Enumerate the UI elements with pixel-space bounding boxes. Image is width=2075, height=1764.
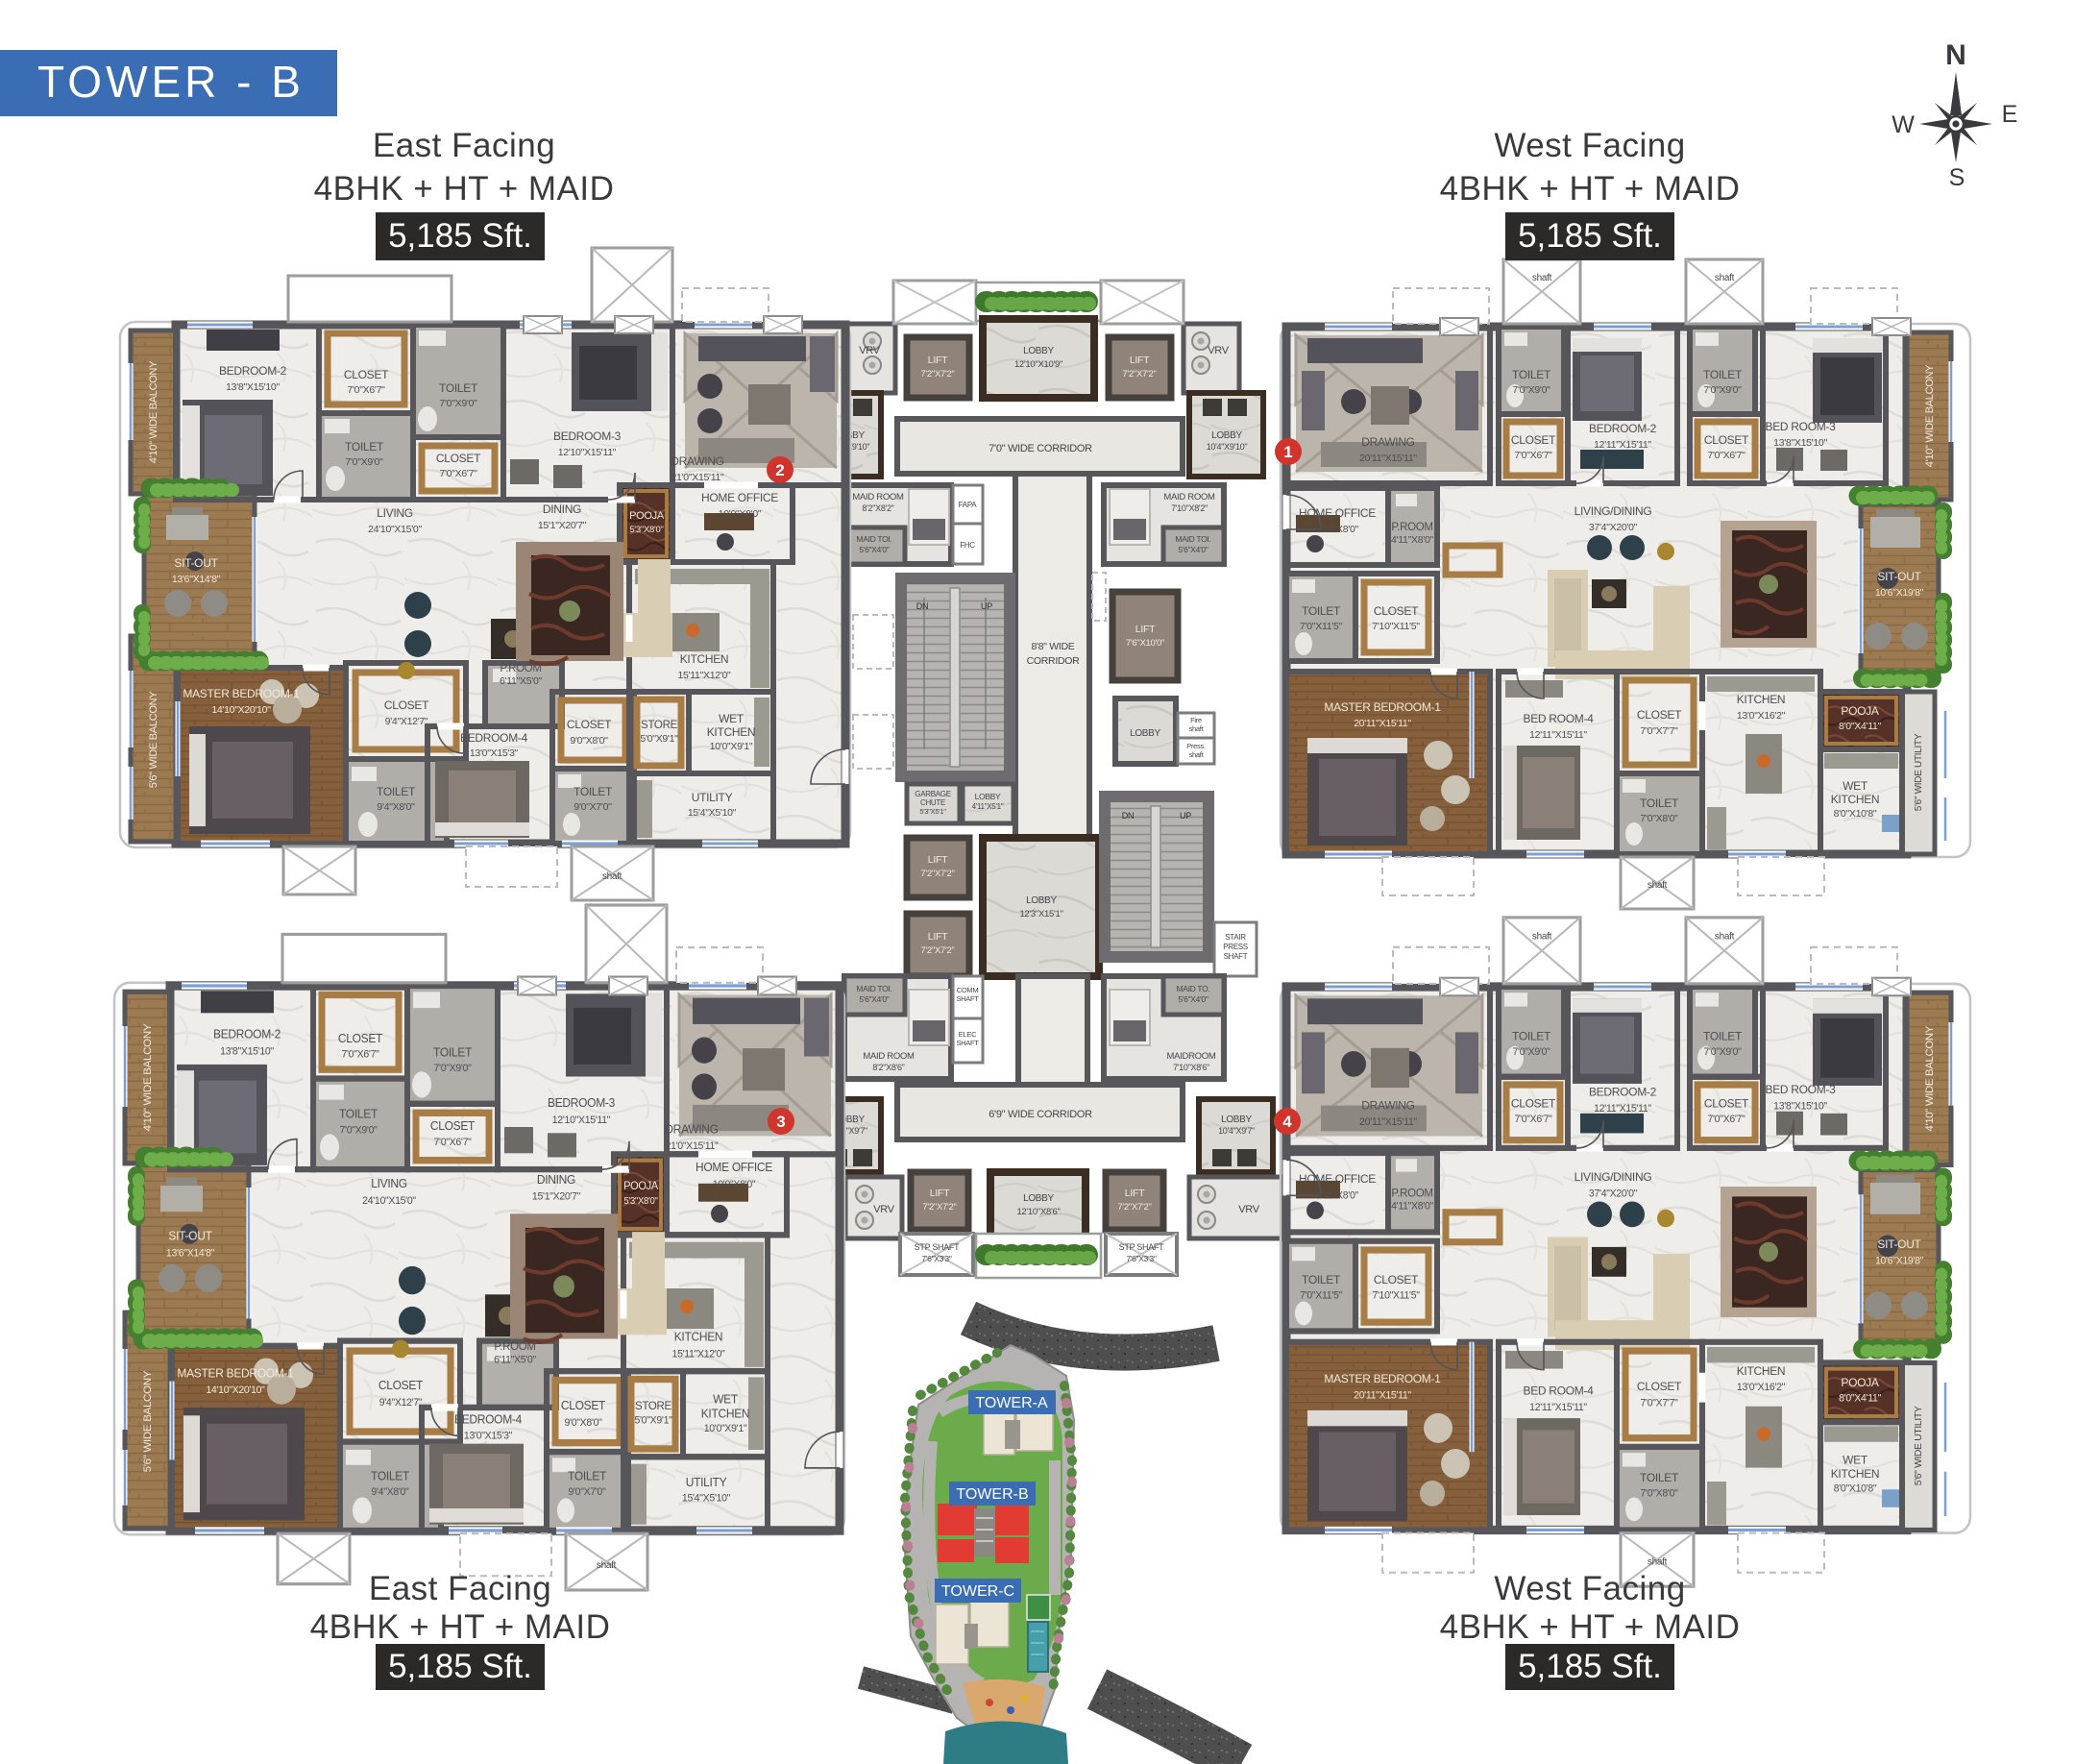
- svg-text:4BHK + HT + MAID: 4BHK + HT + MAID: [310, 1608, 611, 1646]
- svg-text:SHAFT: SHAFT: [956, 1039, 979, 1047]
- svg-text:5'6"X4'0": 5'6"X4'0": [859, 545, 889, 554]
- svg-text:MAID TOI.: MAID TOI.: [856, 534, 891, 544]
- svg-text:MAID TOI.: MAID TOI.: [1175, 534, 1210, 544]
- svg-text:West Facing: West Facing: [1494, 1570, 1685, 1607]
- svg-text:DN: DN: [916, 601, 928, 611]
- svg-text:7'0" WIDE CORRIDOR: 7'0" WIDE CORRIDOR: [989, 443, 1092, 454]
- svg-text:SHAFT: SHAFT: [956, 994, 979, 1003]
- svg-text:MAID ROOM: MAID ROOM: [863, 1051, 915, 1062]
- svg-text:4: 4: [1282, 1113, 1292, 1131]
- svg-text:8'8" WIDE: 8'8" WIDE: [1031, 641, 1074, 652]
- svg-text:12'10"X10'9": 12'10"X10'9": [1014, 359, 1062, 370]
- svg-text:7'2"X7'2": 7'2"X7'2": [1117, 1202, 1151, 1213]
- svg-text:MAID ROOM: MAID ROOM: [852, 492, 904, 502]
- svg-text:GARBAGE: GARBAGE: [915, 790, 950, 798]
- svg-text:TOWER-B: TOWER-B: [956, 1486, 1028, 1503]
- svg-text:FHC: FHC: [960, 541, 975, 550]
- svg-text:MAID TOI.: MAID TOI.: [856, 984, 891, 993]
- svg-text:7'6"X3'3": 7'6"X3'3": [921, 1254, 951, 1263]
- svg-text:5,185 Sft.: 5,185 Sft.: [1518, 1648, 1662, 1685]
- svg-text:CORRIDOR: CORRIDOR: [1027, 655, 1080, 667]
- svg-text:LOBBY: LOBBY: [1130, 728, 1160, 739]
- svg-text:TOWER - B: TOWER - B: [37, 57, 305, 107]
- svg-text:7'6"X10'0": 7'6"X10'0": [1126, 638, 1164, 649]
- svg-text:ELEC: ELEC: [959, 1030, 977, 1039]
- svg-text:LOBBY: LOBBY: [1211, 430, 1242, 441]
- svg-text:MAIDROOM: MAIDROOM: [1167, 1051, 1216, 1062]
- svg-text:LOBBY: LOBBY: [975, 792, 1001, 801]
- svg-text:UP: UP: [1180, 811, 1191, 821]
- svg-text:8'2"X8'2": 8'2"X8'2": [862, 503, 893, 513]
- svg-text:East Facing: East Facing: [369, 1570, 551, 1607]
- svg-text:4'11"X5'1": 4'11"X5'1": [972, 802, 1004, 811]
- svg-text:LIFT: LIFT: [928, 854, 948, 866]
- svg-text:shaft: shaft: [1189, 724, 1205, 733]
- svg-text:7'2"X7'2": 7'2"X7'2": [920, 945, 954, 956]
- svg-text:7'2"X7'2": 7'2"X7'2": [920, 869, 954, 879]
- svg-text:VRV: VRV: [873, 1204, 894, 1215]
- svg-text:VRV: VRV: [859, 345, 880, 356]
- svg-text:STP SHAFT: STP SHAFT: [915, 1242, 960, 1252]
- svg-text:SHAFT: SHAFT: [1224, 952, 1248, 961]
- svg-text:4BHK + HT + MAID: 4BHK + HT + MAID: [1440, 170, 1741, 208]
- svg-text:5,185 Sft.: 5,185 Sft.: [388, 1648, 532, 1685]
- svg-text:6'9" WIDE CORRIDOR: 6'9" WIDE CORRIDOR: [989, 1109, 1092, 1120]
- svg-text:LOBBY: LOBBY: [1221, 1115, 1252, 1125]
- svg-text:STAIR: STAIR: [1225, 933, 1246, 942]
- svg-text:FAPA: FAPA: [959, 501, 978, 509]
- svg-text:4BHK + HT + MAID: 4BHK + HT + MAID: [314, 170, 615, 208]
- svg-text:4BHK + HT + MAID: 4BHK + HT + MAID: [1440, 1608, 1741, 1646]
- svg-text:LOBBY: LOBBY: [1023, 1193, 1054, 1204]
- svg-text:PRESS: PRESS: [1223, 943, 1248, 951]
- svg-text:10'4"X9'10": 10'4"X9'10": [1207, 442, 1248, 452]
- svg-text:VRV: VRV: [1238, 1204, 1259, 1215]
- svg-text:COMM: COMM: [957, 986, 979, 994]
- svg-text:TOWER-A: TOWER-A: [975, 1395, 1048, 1411]
- svg-text:5'6"X4'0": 5'6"X4'0": [1178, 994, 1208, 1004]
- svg-text:10'4"X9'7": 10'4"X9'7": [1218, 1126, 1255, 1136]
- svg-text:12'10"X8'6": 12'10"X8'6": [1016, 1207, 1060, 1217]
- svg-text:7'10"X8'2": 7'10"X8'2": [1171, 503, 1208, 513]
- svg-text:N: N: [1945, 39, 1966, 71]
- svg-text:LIFT: LIFT: [1125, 1188, 1145, 1199]
- svg-text:7'2"X7'2": 7'2"X7'2": [1122, 369, 1156, 380]
- svg-text:LIFT: LIFT: [928, 355, 948, 366]
- svg-text:Fire: Fire: [1190, 716, 1202, 724]
- svg-text:7'2"X7'2": 7'2"X7'2": [922, 1202, 956, 1213]
- svg-text:5'6"X4'0": 5'6"X4'0": [859, 994, 889, 1004]
- svg-text:2: 2: [775, 461, 784, 479]
- svg-text:Press.: Press.: [1186, 742, 1206, 750]
- svg-text:TOWER-C: TOWER-C: [941, 1583, 1014, 1600]
- svg-text:STP SHAFT: STP SHAFT: [1119, 1242, 1164, 1252]
- svg-text:7'2"X7'2": 7'2"X7'2": [920, 369, 954, 380]
- svg-text:5'3"X5'1": 5'3"X5'1": [919, 807, 946, 816]
- svg-text:3: 3: [776, 1113, 785, 1131]
- svg-text:East Facing: East Facing: [373, 127, 555, 164]
- svg-text:5,185 Sft.: 5,185 Sft.: [388, 217, 532, 255]
- svg-text:S: S: [1949, 164, 1965, 191]
- svg-text:LOBBY: LOBBY: [1023, 346, 1054, 356]
- svg-text:E: E: [2002, 101, 2018, 128]
- svg-text:UP: UP: [981, 601, 992, 611]
- svg-text:VRV: VRV: [1208, 345, 1229, 356]
- svg-text:5'6"X4'0": 5'6"X4'0": [1178, 545, 1208, 554]
- svg-text:W: W: [1892, 111, 1915, 138]
- svg-text:MAID TO.: MAID TO.: [1176, 984, 1209, 993]
- svg-text:12'3"X15'1": 12'3"X15'1": [1019, 909, 1062, 919]
- svg-text:DN: DN: [1122, 811, 1134, 821]
- svg-text:shaft: shaft: [1189, 750, 1205, 759]
- svg-text:8'2"X8'6": 8'2"X8'6": [872, 1063, 904, 1072]
- svg-text:LIFT: LIFT: [1130, 355, 1150, 366]
- svg-text:MAID ROOM: MAID ROOM: [1163, 492, 1215, 502]
- svg-text:West Facing: West Facing: [1494, 127, 1685, 164]
- svg-text:7'6"X3'3": 7'6"X3'3": [1126, 1254, 1156, 1263]
- svg-text:CHUTE: CHUTE: [920, 798, 945, 807]
- svg-text:5,185 Sft.: 5,185 Sft.: [1518, 217, 1662, 255]
- svg-text:LIFT: LIFT: [1135, 624, 1156, 635]
- svg-text:LOBBY: LOBBY: [1026, 895, 1057, 906]
- svg-text:LIFT: LIFT: [930, 1188, 950, 1199]
- svg-text:7'10"X8'6": 7'10"X8'6": [1173, 1063, 1209, 1072]
- svg-text:LIFT: LIFT: [928, 931, 948, 943]
- svg-text:1: 1: [1283, 443, 1292, 461]
